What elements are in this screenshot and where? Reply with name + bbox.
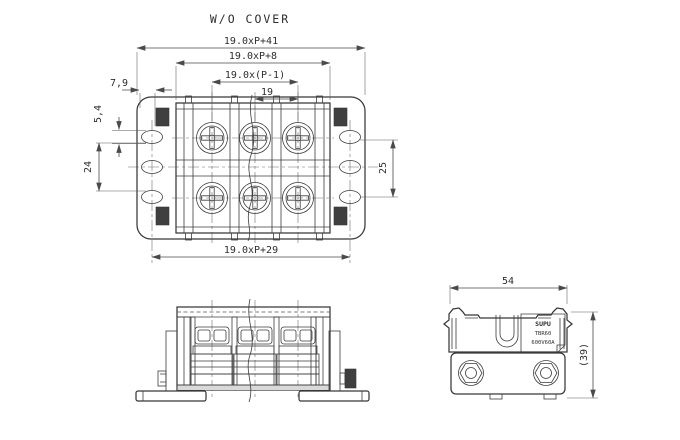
hex-bolt: [534, 361, 559, 386]
end-clamp: [334, 207, 347, 225]
dim-side-height: (39): [579, 343, 590, 367]
cover-clip-channel: [496, 315, 518, 347]
front-housing-outline: [177, 307, 330, 390]
dim-side-width: 54: [502, 276, 514, 287]
side-view-dimensions: 54 (39): [450, 276, 598, 398]
dim-pitch: 19: [261, 87, 273, 98]
base-outline: [451, 353, 565, 394]
front-view: [136, 299, 369, 402]
end-clamp: [156, 207, 169, 225]
drawing-canvas: W/O COVER: [0, 0, 680, 440]
dim-pole-span: 19.0x(P-1): [225, 70, 285, 81]
top-view-dimensions: 19.0xP+41 19.0xP+8 19.0x(P-1) 19 7,9 5,4…: [83, 36, 398, 257]
side-view: SUPU TBR60 600V60A: [444, 308, 572, 399]
barrier-walls: [184, 96, 324, 240]
marking-rating: 600V60A: [531, 340, 555, 346]
dim-edge-offset: 7,9: [110, 78, 128, 89]
mounting-hole-centerlines: [152, 120, 350, 263]
hex-bolt: [459, 361, 484, 386]
dim-mounting-span: 19.0xP+29: [224, 245, 278, 256]
top-view: [128, 92, 378, 263]
end-clamp: [156, 108, 169, 126]
clamp-screw-knob: [345, 369, 356, 388]
terminal-block-drawing: W/O COVER: [0, 0, 680, 440]
drawing-title: W/O COVER: [210, 12, 290, 26]
marking-model: TBR60: [535, 331, 552, 337]
mounting-foot-right: [299, 331, 369, 401]
dim-right-hole-span: 25: [378, 162, 389, 174]
dim-slot-width: 5,4: [93, 105, 104, 123]
dim-body-width: 19.0xP+8: [229, 51, 277, 62]
break-line: [248, 95, 254, 241]
mounting-foot-left: [136, 331, 206, 401]
dim-left-hole-span: 24: [83, 161, 94, 173]
label-box: SUPU TBR60 600V60A: [521, 314, 565, 353]
end-clamp: [334, 108, 347, 126]
marking-brand: SUPU: [535, 320, 551, 328]
dim-overall-width: 19.0xP+41: [224, 36, 278, 47]
